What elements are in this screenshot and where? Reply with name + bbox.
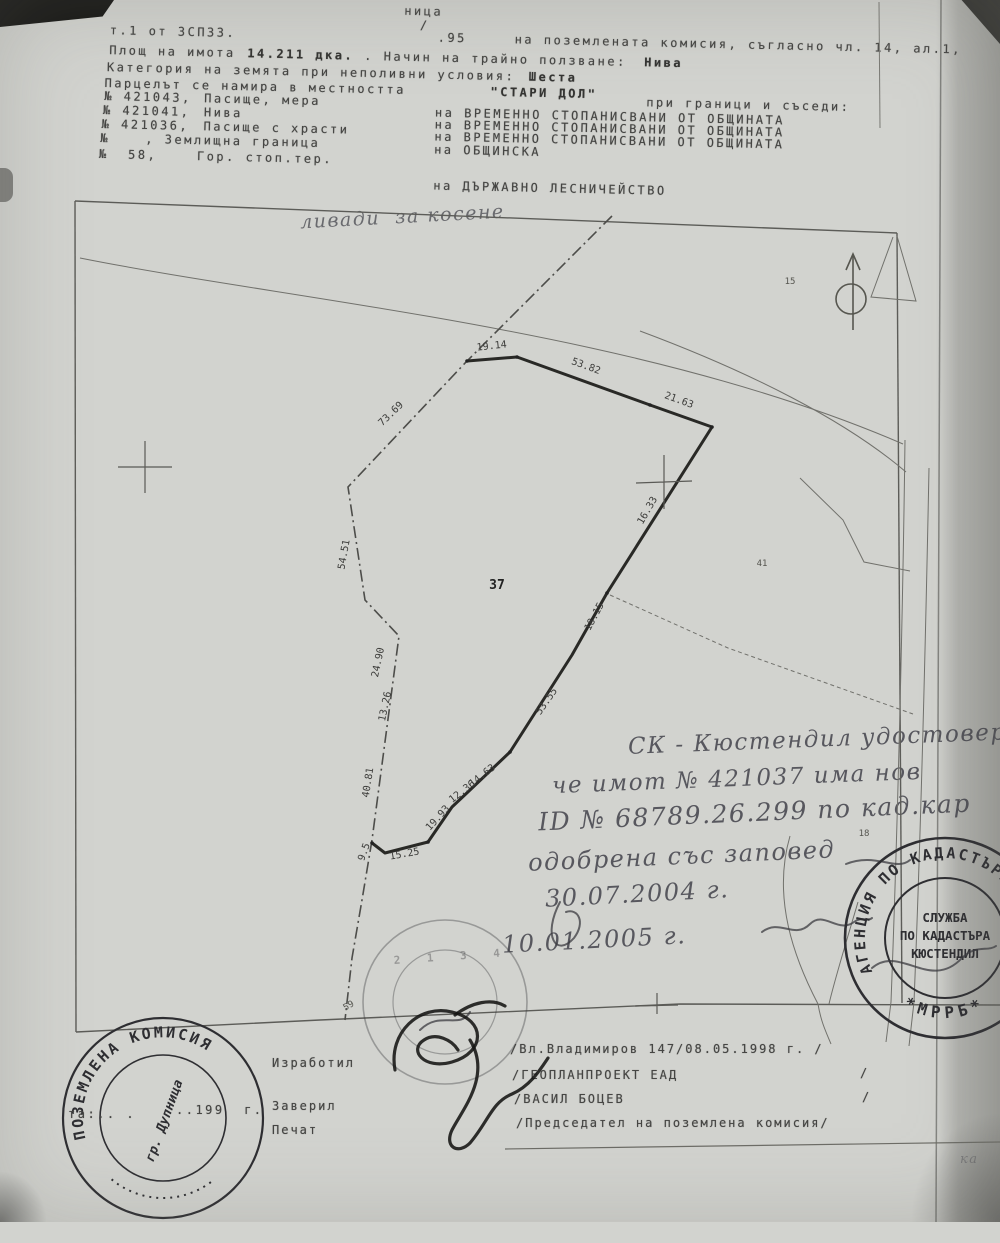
chairman-name-line: /ВАСИЛ БОЦЕВ (514, 1092, 625, 1106)
slash-mark: / (860, 1066, 869, 1080)
stamp-date-prefix: та:.. . (68, 1107, 136, 1121)
document-footer: Изработил Заверил Печат /Вл.Владимиров 1… (0, 0, 1000, 1222)
slash-mark: / (862, 1090, 871, 1104)
company-line: /ГЕОПЛАНПРОЕКТ ЕАД (512, 1068, 678, 1082)
seal-label: Печат (272, 1123, 318, 1137)
made-by-label: Изработил (272, 1056, 355, 1070)
certified-by-label: Заверил (272, 1099, 337, 1113)
stamp-date-year: ..199 г. (176, 1103, 264, 1117)
surveyor-name-line: /Вл.Владимиров 147/08.05.1998 г. / (510, 1042, 824, 1056)
chairman-title-line: /Председател на поземлена комисия/ (516, 1116, 830, 1130)
